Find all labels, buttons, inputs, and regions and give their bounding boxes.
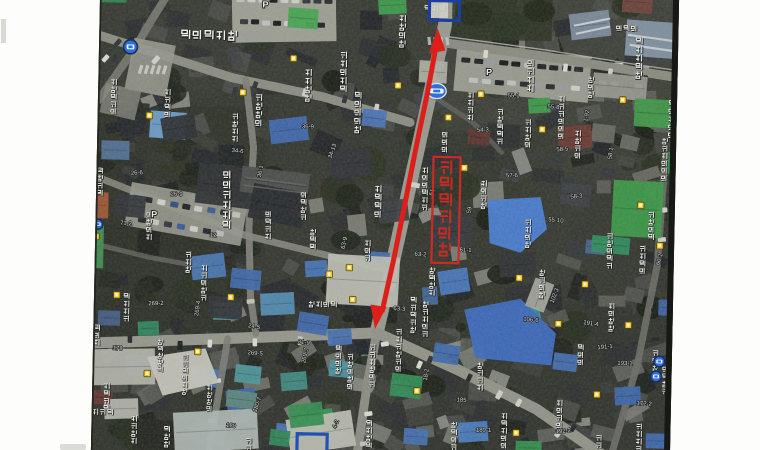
svg-text:61-1: 61-1: [459, 248, 472, 255]
svg-text:57-6: 57-6: [506, 173, 519, 179]
svg-text:55-1: 55-1: [508, 93, 521, 99]
svg-text:26-6: 26-6: [131, 170, 144, 177]
svg-text:36-9: 36-9: [302, 124, 315, 130]
svg-text:180: 180: [226, 423, 237, 430]
svg-text:54-3: 54-3: [477, 127, 490, 133]
svg-text:63-3: 63-3: [393, 306, 406, 313]
svg-text:185: 185: [456, 397, 467, 404]
svg-text:55-8: 55-8: [547, 104, 560, 111]
svg-text:12: 12: [210, 232, 218, 239]
svg-text:P: P: [151, 209, 157, 219]
svg-text:63-2: 63-2: [414, 252, 427, 259]
svg-text:172-2: 172-2: [636, 401, 652, 408]
svg-text:58-3: 58-3: [570, 194, 583, 201]
svg-text:26-9: 26-9: [170, 192, 183, 198]
svg-text:58-5: 58-5: [556, 146, 569, 153]
svg-text:189-1: 189-1: [476, 428, 492, 434]
svg-text:71-2: 71-2: [120, 221, 133, 228]
svg-text:P: P: [262, 0, 268, 10]
svg-text:P: P: [486, 67, 492, 77]
svg-text:193-1: 193-1: [617, 361, 633, 368]
svg-text:269-2: 269-2: [148, 301, 164, 307]
svg-text:178: 178: [112, 346, 123, 353]
